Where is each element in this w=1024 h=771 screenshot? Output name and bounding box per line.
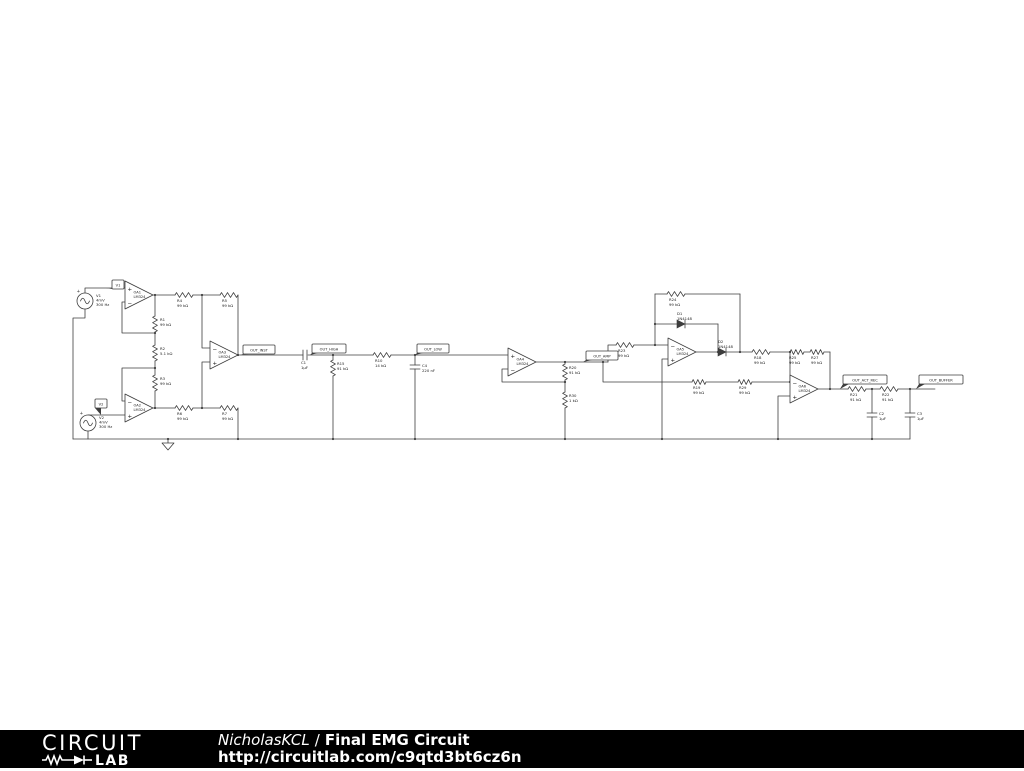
flag-label: OUT_ACT_REC	[852, 379, 878, 383]
circuitlab-logo-icon: CIRCUIT LAB	[40, 731, 208, 767]
flag-leader	[840, 384, 849, 389]
wire	[662, 359, 668, 439]
resistor-r25: R2599 kΩ	[789, 350, 804, 365]
author-name: NicholasKCL	[218, 731, 310, 749]
resistor-value: 91 kΩ	[882, 397, 893, 402]
junction-dot	[654, 323, 656, 325]
footer-meta: NicholasKCL/Final EMG Circuit http://cir…	[218, 732, 522, 766]
wire	[778, 396, 790, 439]
resistor-r10: R1014 kΩ	[373, 353, 391, 368]
opamp-input-mark: +	[793, 395, 798, 401]
junction-dot	[564, 438, 566, 440]
resistor-value: 99 kΩ	[160, 381, 171, 386]
resistor-r2: R25.1 kΩ	[153, 345, 173, 361]
resistor-body	[616, 343, 634, 348]
resistor-value: 99 kΩ	[222, 303, 233, 308]
resistor-value: 14 kΩ	[375, 363, 386, 368]
resistor-value: 99 kΩ	[177, 303, 188, 308]
diode-d1: D11N4148	[677, 311, 693, 328]
junction-dot	[237, 438, 239, 440]
opamp-input-mark: +	[128, 414, 133, 420]
resistor-r19: R1999 kΩ	[692, 380, 706, 395]
ground-symbol	[162, 443, 174, 450]
opamp-input-mark: −	[213, 347, 218, 353]
resistor-r30: R301 kΩ	[563, 392, 578, 408]
resistor-diode-icon	[42, 756, 92, 765]
resistor-body	[738, 380, 752, 385]
flag-label: OUT_BUFFER	[929, 379, 953, 383]
net-flag-out_low: OUT_LOW	[415, 344, 449, 355]
opamp-input-mark: −	[511, 368, 516, 374]
junction-dot	[602, 361, 604, 363]
resistor-r20: R2091 kΩ	[563, 364, 581, 380]
flag-label: OUT_HIGH	[320, 348, 339, 352]
junction-dot	[739, 351, 741, 353]
opamp-part: LM324	[219, 355, 232, 359]
resistor-r18: R1899 kΩ	[752, 350, 770, 365]
resistor-r1: R199 kΩ	[153, 316, 172, 332]
resistor-value: 1 kΩ	[569, 398, 578, 403]
wire	[202, 362, 210, 408]
flag-label: OUT_LOW	[424, 348, 442, 352]
net-flag-v2: V2	[95, 399, 107, 415]
resistor-body	[692, 380, 706, 385]
opamp-part: LM324	[517, 362, 530, 366]
resistor-body	[331, 360, 336, 376]
opamp-name: OA5	[677, 348, 685, 352]
opamp-name: OA4	[517, 358, 525, 362]
opamp-input-mark: +	[671, 358, 676, 364]
resistor-value: 91 kΩ	[569, 370, 580, 375]
resistor-body	[373, 353, 391, 358]
flag-label: V1	[116, 284, 121, 288]
opamp-input-mark: +	[128, 287, 133, 293]
resistor-body	[563, 364, 568, 380]
opamp-part: LM324	[677, 352, 690, 356]
resistor-body	[175, 293, 193, 298]
resistor-body	[810, 350, 824, 355]
opamp-oa1: +−OA1LM324	[125, 281, 153, 309]
resistor-value: 99 kΩ	[754, 360, 765, 365]
resistor-body	[153, 375, 158, 391]
resistor-body	[880, 387, 898, 392]
junction-dot	[564, 381, 566, 383]
resistor-value: 99 kΩ	[160, 322, 171, 327]
opamp-oa5: −+OA5LM324	[668, 338, 696, 366]
net-flag-out_inst: OUT_INST	[240, 345, 275, 355]
opamp-oa2: −+OA2LM324	[125, 394, 153, 422]
opamp-input-mark: −	[128, 301, 133, 307]
resistor-value: 99 kΩ	[811, 360, 822, 365]
resistor-value: 99 kΩ	[693, 390, 704, 395]
junction-dot	[167, 438, 169, 440]
resistor-r5: R599 kΩ	[220, 293, 238, 308]
opamp-oa3: −+OA3LM324	[210, 341, 238, 369]
voltage-source-v1: +V14mV300 Hz	[77, 289, 110, 310]
title-separator: /	[315, 731, 320, 749]
opamp-name: OA1	[134, 291, 142, 295]
resistor-r3: R399 kΩ	[153, 375, 172, 391]
capacitor-value: 1µF	[879, 416, 886, 421]
wire	[202, 295, 210, 348]
resistor-body	[220, 406, 238, 411]
resistor-r6: R699 kΩ	[175, 406, 193, 421]
opamp-name: OA2	[134, 404, 142, 408]
flag-label: OUT_AMP	[593, 355, 611, 359]
resistor-body	[153, 316, 158, 332]
capacitor-c1: C11µF	[301, 350, 308, 370]
circuitlab-logo: CIRCUIT LAB	[40, 731, 208, 767]
wire	[603, 362, 692, 382]
voltage-source-v2: +V24mV300 Hz	[80, 411, 113, 432]
resistor-r4: R499 kΩ	[175, 293, 193, 308]
opamp-part: LM324	[134, 295, 147, 299]
junction-dot	[154, 294, 156, 296]
resistor-body	[220, 293, 238, 298]
opamp-oa6: −+OA6LM324	[790, 375, 818, 403]
source-polarity: +	[80, 411, 84, 417]
capacitor-c2: C21µF	[867, 411, 886, 421]
circuit-schematic: R199 kΩR25.1 kΩR399 kΩR499 kΩR599 kΩR699…	[0, 0, 1024, 768]
junction-dot	[154, 367, 156, 369]
resistor-value: 99 kΩ	[618, 353, 629, 358]
resistor-value: 99 kΩ	[789, 360, 800, 365]
opamp-oa4: +−OA4LM324	[508, 348, 536, 376]
junction-dot	[871, 438, 873, 440]
opamp-input-mark: −	[671, 344, 676, 350]
opamp-name: OA3	[219, 351, 227, 355]
junction-dot	[871, 388, 873, 390]
logo-circuit-text: CIRCUIT	[42, 731, 143, 755]
diode-arrow	[718, 348, 726, 356]
capacitor-value: 1µF	[301, 365, 308, 370]
junction-dot	[909, 388, 911, 390]
flag-label: OUT_INST	[250, 349, 268, 353]
resistor-r24: R2499 kΩ	[667, 292, 685, 307]
opamp-part: LM324	[134, 408, 147, 412]
resistor-r27: R2799 kΩ	[810, 350, 824, 365]
net-flag-out_amp: OUT_AMP	[583, 351, 618, 362]
opamp-input-mark: −	[128, 400, 133, 406]
opamp-input-mark: +	[511, 354, 516, 360]
junction-dot	[829, 388, 831, 390]
resistor-body	[848, 387, 866, 392]
junction-dot	[564, 361, 566, 363]
resistor-r29: R2999 kΩ	[738, 380, 752, 395]
junction-dot	[414, 438, 416, 440]
junction-dot	[661, 438, 663, 440]
capacitor-c4: C4220 nF	[410, 363, 435, 373]
flag-label: V2	[99, 403, 104, 407]
diode-arrow	[677, 320, 685, 328]
footer-bar: CIRCUIT LAB NicholasKCL/Final EMG Circui…	[0, 730, 1024, 768]
circuit-url: http://circuitlab.com/c9qtd3bt6cz6n	[218, 749, 522, 766]
flag-leader	[95, 408, 101, 415]
resistor-body	[752, 350, 770, 355]
net-flag-out_buffer: OUT_BUFFER	[916, 375, 963, 389]
junction-dot	[332, 354, 334, 356]
resistor-value: 91 kΩ	[850, 397, 861, 402]
capacitor-value: 1µF	[917, 416, 924, 421]
resistor-value: 5.1 kΩ	[160, 351, 172, 356]
junction-dot	[777, 438, 779, 440]
circuit-title: Final EMG Circuit	[325, 731, 470, 749]
resistor-r15: R1591 kΩ	[331, 360, 349, 376]
circuit-title-line: NicholasKCL/Final EMG Circuit	[218, 732, 522, 749]
resistor-value: 99 kΩ	[177, 416, 188, 421]
resistor-r7: R799 kΩ	[220, 406, 238, 421]
junction-dot	[154, 407, 156, 409]
resistor-r23: R2399 kΩ	[616, 343, 634, 358]
opamp-part: LM324	[799, 389, 812, 393]
resistor-value: 99 kΩ	[739, 390, 750, 395]
opamp-input-mark: +	[213, 361, 218, 367]
junction-dot	[654, 344, 656, 346]
resistor-value: 99 kΩ	[669, 302, 680, 307]
resistor-body	[667, 292, 685, 297]
resistor-body	[790, 350, 804, 355]
diode-value: 1N4148	[718, 344, 734, 349]
source-label: 300 Hz	[96, 302, 109, 307]
resistor-body	[563, 392, 568, 408]
logo-lab-text: LAB	[95, 753, 130, 767]
resistor-r22: R2291 kΩ	[880, 387, 898, 402]
capacitor-c3: C31µF	[905, 411, 924, 421]
net-flag-out_high: OUT_HIGH	[310, 344, 346, 355]
junction-dot	[332, 438, 334, 440]
resistor-value: 91 kΩ	[337, 366, 348, 371]
junction-dot	[201, 407, 203, 409]
resistor-r21: R2191 kΩ	[848, 387, 866, 402]
diode-d2: D21N4148	[718, 339, 734, 356]
diode-value: 1N4148	[677, 316, 693, 321]
resistor-value: 99 kΩ	[222, 416, 233, 421]
opamp-name: OA6	[799, 385, 807, 389]
junction-dot	[201, 294, 203, 296]
capacitor-value: 220 nF	[422, 368, 435, 373]
resistor-body	[153, 345, 158, 361]
flag-leader	[916, 384, 925, 389]
opamp-input-mark: −	[793, 381, 798, 387]
source-polarity: +	[77, 289, 81, 295]
source-label: 300 Hz	[99, 424, 112, 429]
net-flag-out_act_rec: OUT_ACT_REC	[840, 375, 887, 389]
resistor-body	[175, 406, 193, 411]
